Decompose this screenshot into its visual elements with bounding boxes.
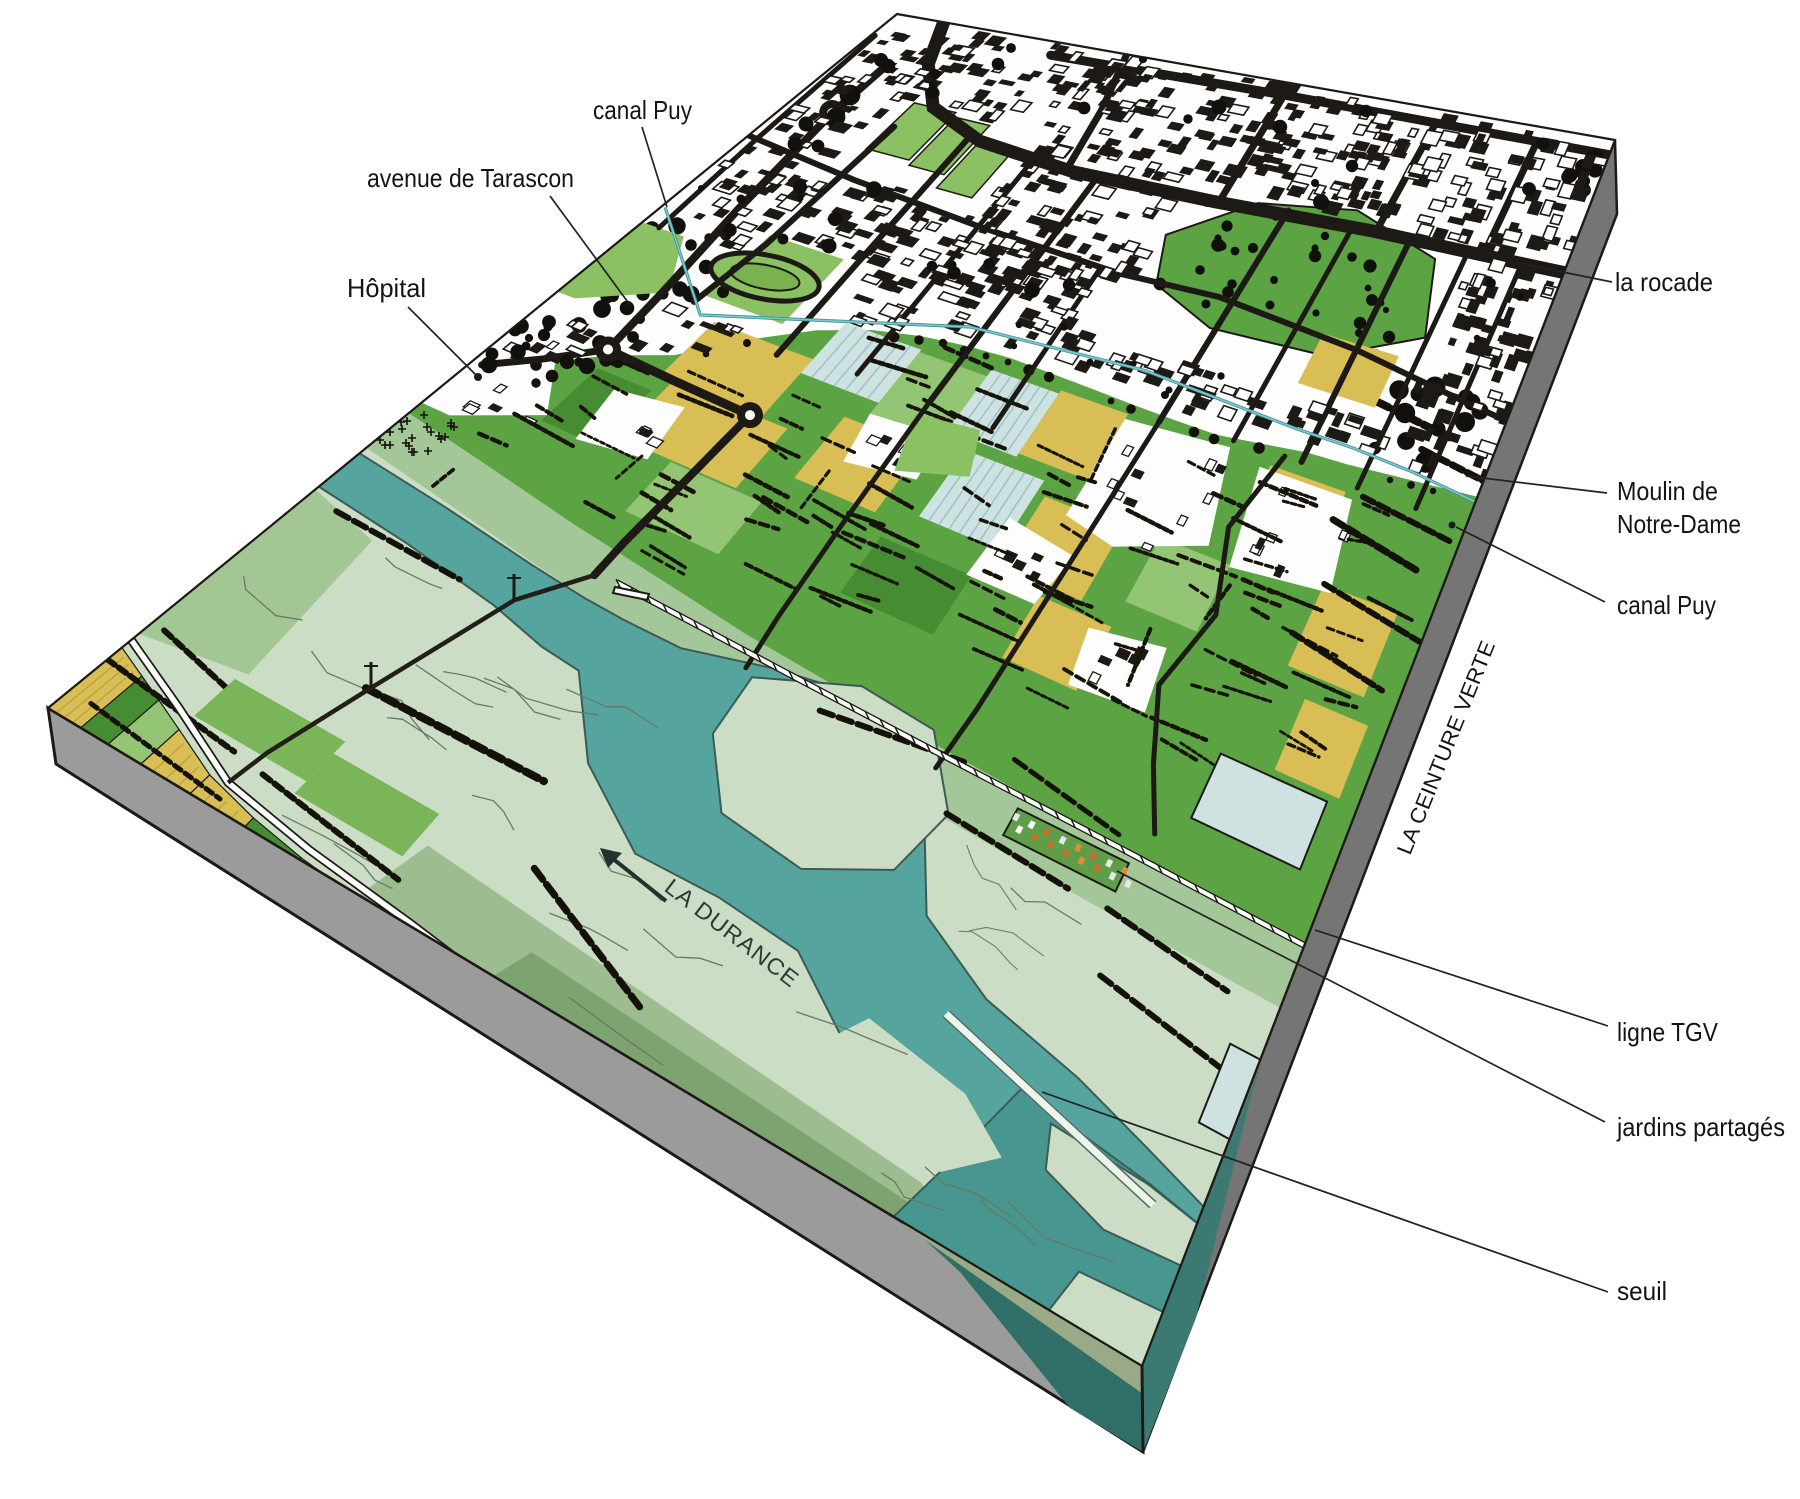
svg-text:jardins partagés: jardins partagés — [1616, 1112, 1785, 1142]
svg-text:seuil: seuil — [1617, 1276, 1667, 1306]
svg-text:Moulin de: Moulin de — [1617, 476, 1718, 506]
svg-text:canal Puy: canal Puy — [593, 95, 692, 125]
svg-text:la rocade: la rocade — [1615, 267, 1713, 297]
svg-text:Hôpital: Hôpital — [347, 273, 426, 303]
svg-text:canal Puy: canal Puy — [1617, 590, 1716, 620]
svg-text:avenue de Tarascon: avenue de Tarascon — [367, 163, 574, 193]
svg-text:ligne TGV: ligne TGV — [1617, 1017, 1719, 1047]
svg-text:Notre-Dame: Notre-Dame — [1617, 509, 1741, 539]
